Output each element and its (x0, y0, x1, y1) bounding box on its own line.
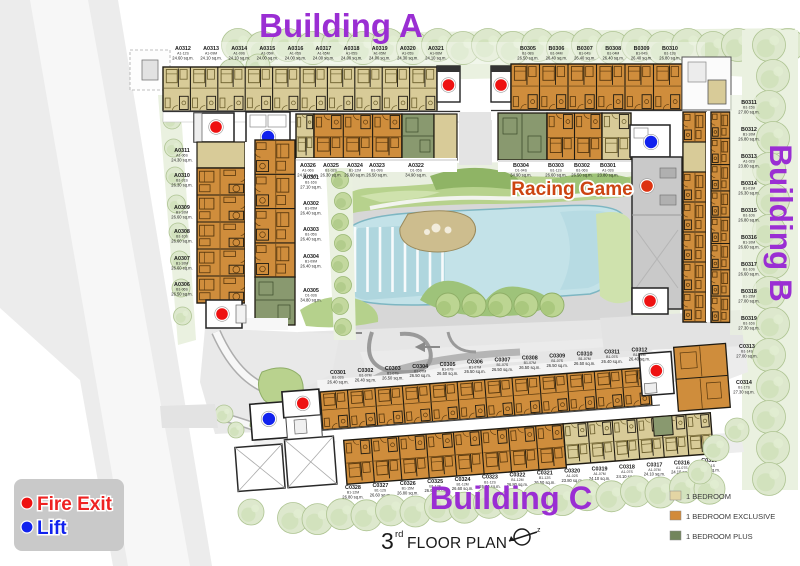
svg-text:26.30 sq.m.: 26.30 sq.m. (171, 182, 192, 187)
svg-text:26.30 sq.m.: 26.30 sq.m. (738, 190, 759, 195)
svg-text:27.30 sq.m.: 27.30 sq.m. (733, 389, 754, 394)
svg-text:24.10 sq.m.: 24.10 sq.m. (425, 55, 446, 60)
svg-text:26.80 sq.m.: 26.80 sq.m. (397, 490, 418, 495)
svg-text:26.60 sq.m.: 26.60 sq.m. (171, 214, 192, 219)
svg-text:FLOOR PLAN: FLOOR PLAN (407, 535, 507, 552)
svg-text:1 BEDROOM PLUS: 1 BEDROOM PLUS (686, 532, 753, 541)
svg-text:26.40 sq.m.: 26.40 sq.m. (546, 55, 567, 60)
svg-text:26.40 sq.m.: 26.40 sq.m. (300, 236, 321, 241)
svg-text:26.50 sq.m.: 26.50 sq.m. (547, 363, 568, 368)
svg-text:26.40 sq.m.: 26.40 sq.m. (629, 357, 650, 362)
svg-text:26.60 sq.m.: 26.60 sq.m. (545, 172, 566, 177)
svg-text:rd: rd (395, 529, 403, 540)
svg-text:24.10 sq.m.: 24.10 sq.m. (644, 472, 665, 477)
svg-text:Building C: Building C (430, 480, 592, 516)
svg-text:Building B: Building B (763, 144, 799, 301)
svg-text:1 BEDROOM: 1 BEDROOM (686, 492, 731, 501)
svg-text:26.60 sq.m.: 26.60 sq.m. (171, 265, 192, 270)
svg-text:z: z (537, 527, 541, 534)
svg-text:26.60 sq.m.: 26.60 sq.m. (738, 271, 759, 276)
svg-text:26.40 sq.m.: 26.40 sq.m. (300, 263, 321, 268)
svg-text:26.50 sq.m.: 26.50 sq.m. (492, 367, 513, 372)
svg-text:26.60 sq.m.: 26.60 sq.m. (171, 238, 192, 243)
svg-text:24.30 sq.m.: 24.30 sq.m. (171, 157, 192, 162)
svg-text:1 BEDROOM EXCLUSIVE: 1 BEDROOM EXCLUSIVE (686, 512, 775, 521)
svg-text:26.60 sq.m.: 26.60 sq.m. (738, 244, 759, 249)
svg-text:26.80 sq.m.: 26.80 sq.m. (342, 494, 363, 499)
svg-text:26.80 sq.m.: 26.80 sq.m. (659, 55, 680, 60)
svg-text:26.30 sq.m.: 26.30 sq.m. (320, 172, 341, 177)
svg-text:26.50 sq.m.: 26.50 sq.m. (437, 371, 458, 376)
svg-text:34.80 sq.m.: 34.80 sq.m. (300, 297, 321, 302)
svg-text:27.10 sq.m.: 27.10 sq.m. (300, 184, 321, 189)
svg-text:26.80 sq.m.: 26.80 sq.m. (738, 136, 759, 141)
svg-text:26.40 sq.m.: 26.40 sq.m. (355, 377, 376, 382)
svg-text:24.00 sq.m.: 24.00 sq.m. (313, 55, 334, 60)
svg-text:26.80 sq.m.: 26.80 sq.m. (738, 217, 759, 222)
svg-text:26.40 sq.m.: 26.40 sq.m. (603, 55, 624, 60)
svg-text:24.00 sq.m.: 24.00 sq.m. (369, 55, 390, 60)
svg-text:26.40 sq.m.: 26.40 sq.m. (601, 359, 622, 364)
svg-text:27.30 sq.m.: 27.30 sq.m. (738, 325, 759, 330)
svg-text:26.50 sq.m.: 26.50 sq.m. (571, 172, 592, 177)
svg-text:26.50 sq.m.: 26.50 sq.m. (410, 373, 431, 378)
svg-text:26.50 sq.m.: 26.50 sq.m. (574, 361, 595, 366)
svg-text:Building A: Building A (259, 7, 423, 44)
svg-text:34.90 sq.m.: 34.90 sq.m. (510, 172, 531, 177)
svg-text:24.30 sq.m.: 24.30 sq.m. (397, 55, 418, 60)
svg-text:3: 3 (381, 528, 394, 554)
svg-text:Lift: Lift (37, 518, 67, 539)
svg-text:26.40 sq.m.: 26.40 sq.m. (327, 379, 348, 384)
svg-text:26.50 sq.m.: 26.50 sq.m. (519, 365, 540, 370)
svg-text:24.00 sq.m.: 24.00 sq.m. (285, 55, 306, 60)
svg-text:26.50 sq.m.: 26.50 sq.m. (382, 375, 403, 380)
svg-text:26.40 sq.m.: 26.40 sq.m. (631, 55, 652, 60)
svg-text:26.60 sq.m.: 26.60 sq.m. (344, 172, 365, 177)
svg-text:26.50 sq.m.: 26.50 sq.m. (171, 291, 192, 296)
svg-text:24.00 sq.m.: 24.00 sq.m. (257, 55, 278, 60)
svg-text:24.60 sq.m.: 24.60 sq.m. (172, 55, 193, 60)
svg-text:24.00 sq.m.: 24.00 sq.m. (341, 55, 362, 60)
svg-text:27.00 sq.m.: 27.00 sq.m. (738, 109, 759, 114)
svg-text:26.40 sq.m.: 26.40 sq.m. (574, 55, 595, 60)
svg-text:Fire Exit: Fire Exit (37, 494, 113, 515)
svg-text:27.00 sq.m.: 27.00 sq.m. (736, 353, 757, 358)
svg-text:24.10 sq.m.: 24.10 sq.m. (229, 55, 250, 60)
svg-text:Racing Game: Racing Game (511, 179, 632, 200)
svg-text:23.80 sq.m.: 23.80 sq.m. (597, 172, 618, 177)
svg-text:26.50 sq.m.: 26.50 sq.m. (464, 369, 485, 374)
svg-text:34.90 sq.m.: 34.90 sq.m. (405, 172, 426, 177)
svg-text:26.50 sq.m.: 26.50 sq.m. (366, 172, 387, 177)
svg-text:27.00 sq.m.: 27.00 sq.m. (738, 298, 759, 303)
svg-text:24.10 sq.m.: 24.10 sq.m. (200, 55, 221, 60)
svg-text:23.80 sq.m.: 23.80 sq.m. (738, 163, 759, 168)
svg-text:26.50 sq.m.: 26.50 sq.m. (517, 55, 538, 60)
svg-text:26.40 sq.m.: 26.40 sq.m. (300, 210, 321, 215)
